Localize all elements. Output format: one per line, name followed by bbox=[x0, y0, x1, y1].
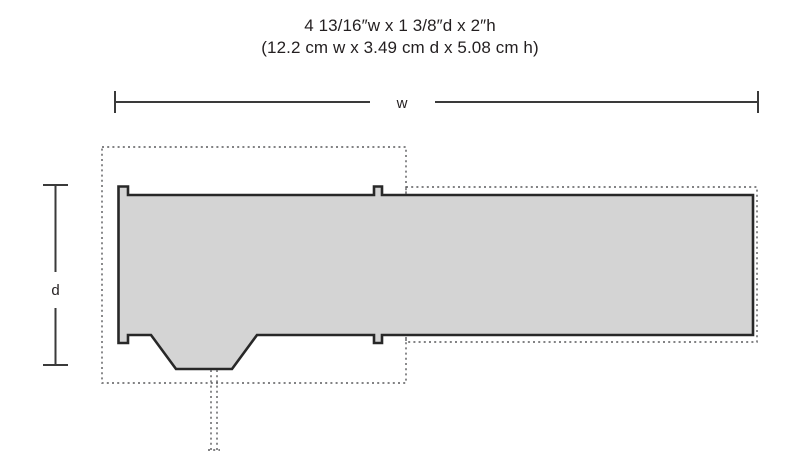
width-dimension-label: w bbox=[396, 95, 408, 112]
depth-dimension-line: d bbox=[43, 185, 68, 365]
front-extension-dashed-lines bbox=[208, 370, 220, 450]
footprint-diagram: 4 13/16″w x 1 3/8″d x 2″h (12.2 cm w x 3… bbox=[0, 0, 800, 473]
footprint-drawing: w d bbox=[0, 0, 800, 473]
depth-dimension-label: d bbox=[51, 282, 59, 299]
width-dimension-line: w bbox=[115, 91, 758, 113]
